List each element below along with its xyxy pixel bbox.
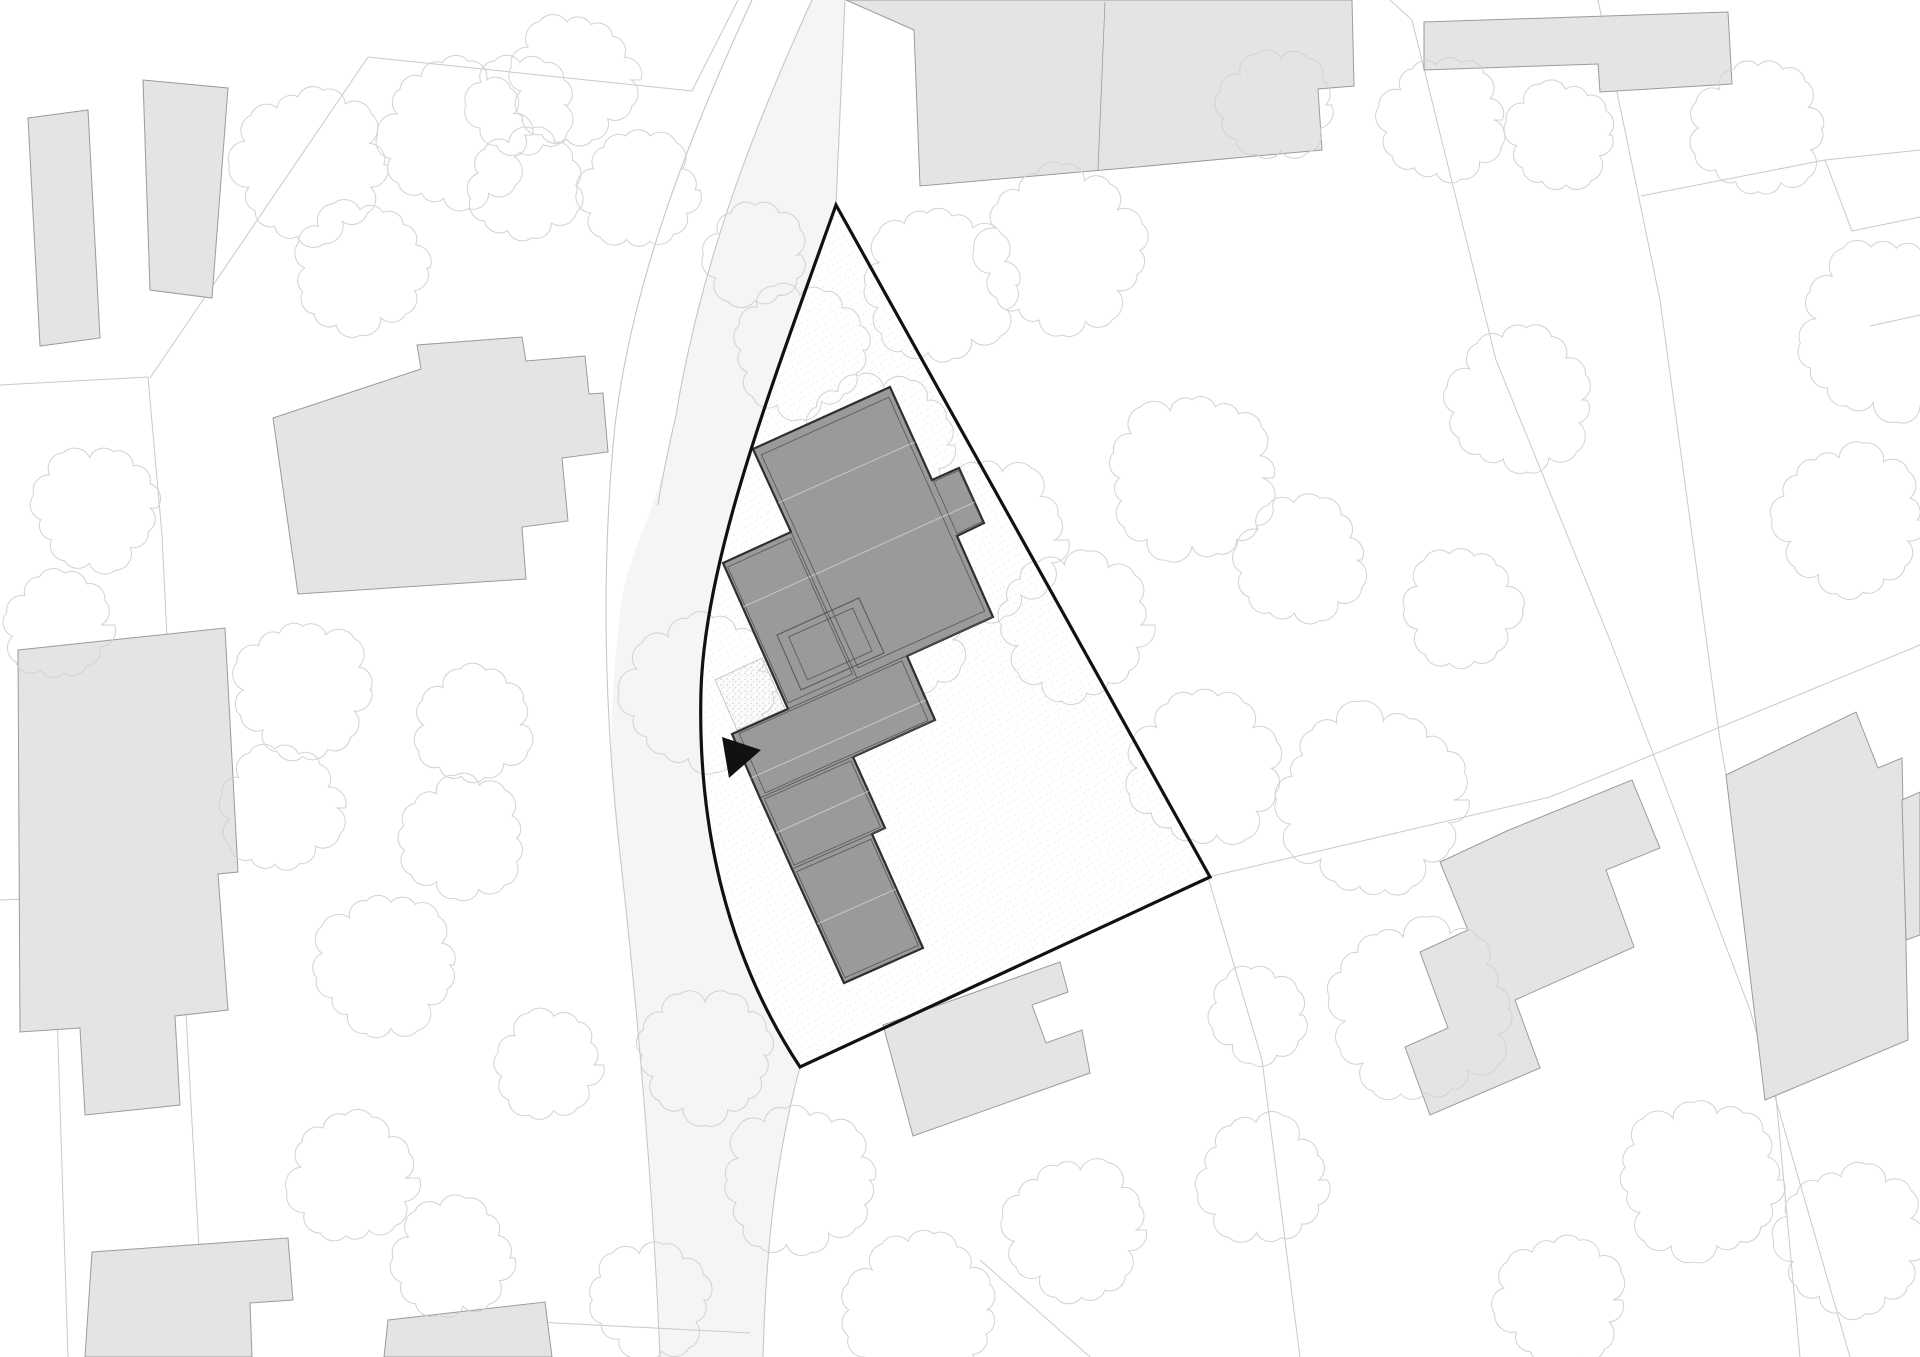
- tree-canopy-icon: [467, 127, 583, 241]
- tree-canopy-icon: [509, 15, 642, 146]
- context-building: [273, 337, 608, 594]
- tree-canopy-icon: [1620, 1101, 1785, 1263]
- tree-canopy-icon: [1403, 549, 1524, 669]
- tree-canopy-icon: [1376, 57, 1505, 182]
- tree-canopy-icon: [1208, 966, 1307, 1066]
- tree-canopy-icon: [1110, 397, 1275, 563]
- context-building: [846, 0, 1354, 186]
- tree-canopy-icon: [219, 744, 346, 870]
- context-building: [28, 110, 100, 346]
- tree-canopy-icon: [1770, 442, 1920, 600]
- tree-canopy-icon: [1001, 1159, 1146, 1304]
- tree-canopy-icon: [973, 162, 1148, 336]
- tree-canopy-icon: [842, 1230, 995, 1357]
- tree-canopy-icon: [1798, 240, 1920, 422]
- tree-canopy-icon: [228, 87, 388, 248]
- tree-canopy-icon: [1444, 325, 1591, 474]
- tree-canopy-icon: [398, 773, 522, 901]
- context-building: [1405, 780, 1660, 1115]
- parcel-boundary-line: [368, 57, 692, 91]
- site-plan-page: [0, 0, 1920, 1357]
- tree-canopy-icon: [233, 623, 372, 761]
- tree-canopy-icon: [576, 130, 701, 247]
- context-building: [1726, 712, 1908, 1100]
- parcel-boundary-line: [1208, 877, 1300, 1357]
- site-plan-canvas: [0, 0, 1920, 1357]
- tree-canopy-icon: [494, 1008, 604, 1119]
- tree-canopy-icon: [286, 1109, 421, 1240]
- parcel-boundary-line: [980, 1260, 1090, 1357]
- context-building: [143, 80, 228, 298]
- parcel-boundary-line: [1641, 150, 1920, 196]
- parcel-boundary-line: [1825, 160, 1920, 231]
- parcel-boundary-line: [1870, 315, 1920, 326]
- tree-canopy-icon: [1195, 1112, 1330, 1243]
- context-building: [1424, 12, 1732, 92]
- tree-canopy-icon: [313, 895, 455, 1037]
- tree-canopy-icon: [1233, 494, 1367, 624]
- tree-canopy-icon: [1504, 80, 1614, 190]
- tree-canopy-icon: [414, 663, 533, 783]
- tree-canopy-icon: [30, 448, 160, 574]
- tree-canopy-icon: [1492, 1235, 1625, 1357]
- context-building: [18, 628, 238, 1115]
- tree-canopy-icon: [390, 1195, 516, 1317]
- context-building: [85, 1238, 293, 1357]
- tree-canopy-icon: [1275, 701, 1469, 895]
